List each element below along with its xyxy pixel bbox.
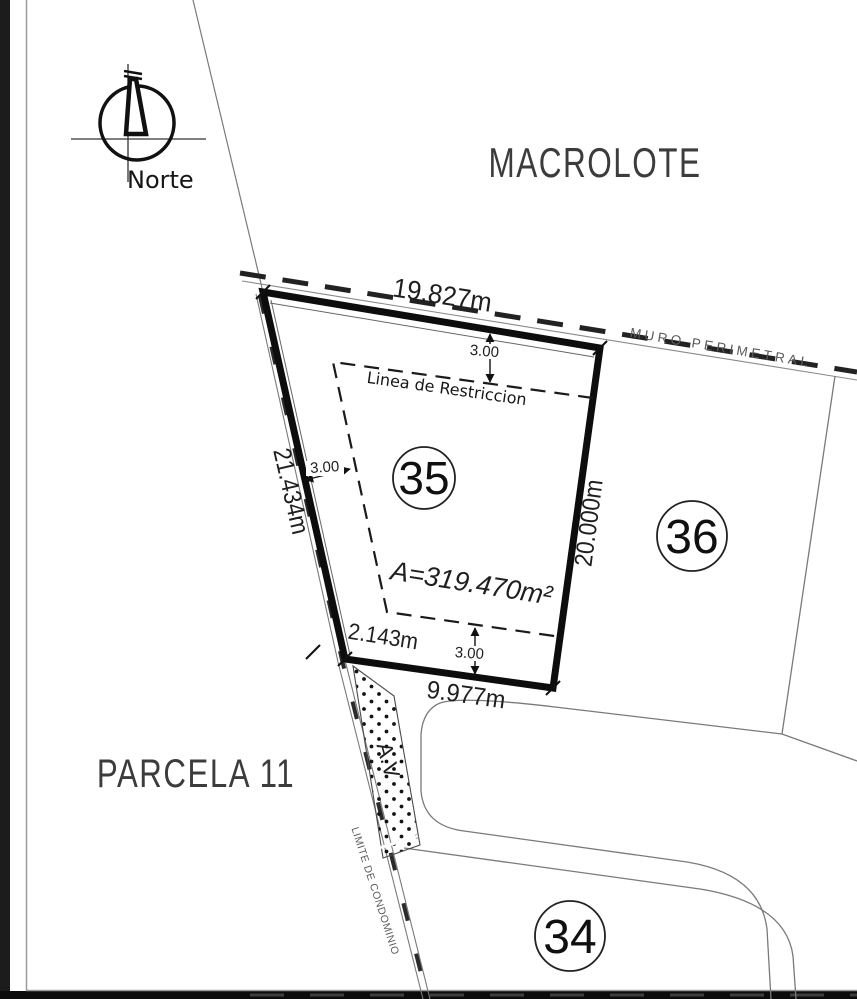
lot36-number: 36 bbox=[665, 511, 718, 564]
macrolote-label: MACROLOTE bbox=[489, 139, 702, 187]
setback-top-value: 3.00 bbox=[469, 342, 500, 361]
lot35-number: 35 bbox=[398, 452, 449, 504]
lot35-bubble: 35 bbox=[393, 447, 455, 509]
parcela-label: PARCELA 11 bbox=[97, 751, 295, 796]
site-plan-svg: 3.00 3.00 3.00 19.827m 21.434m 20.000m 9… bbox=[0, 0, 857, 999]
lot34-number: 34 bbox=[543, 911, 596, 964]
north-label: Norte bbox=[127, 166, 194, 194]
scan-edge-left bbox=[0, 0, 10, 999]
setback-left-value: 3.00 bbox=[310, 458, 340, 477]
lot34-bubble: 34 bbox=[535, 901, 605, 971]
lot36-bubble: 36 bbox=[657, 501, 727, 571]
setback-bottom-value: 3.00 bbox=[454, 644, 484, 663]
site-plan-sheet: 3.00 3.00 3.00 19.827m 21.434m 20.000m 9… bbox=[0, 0, 857, 999]
